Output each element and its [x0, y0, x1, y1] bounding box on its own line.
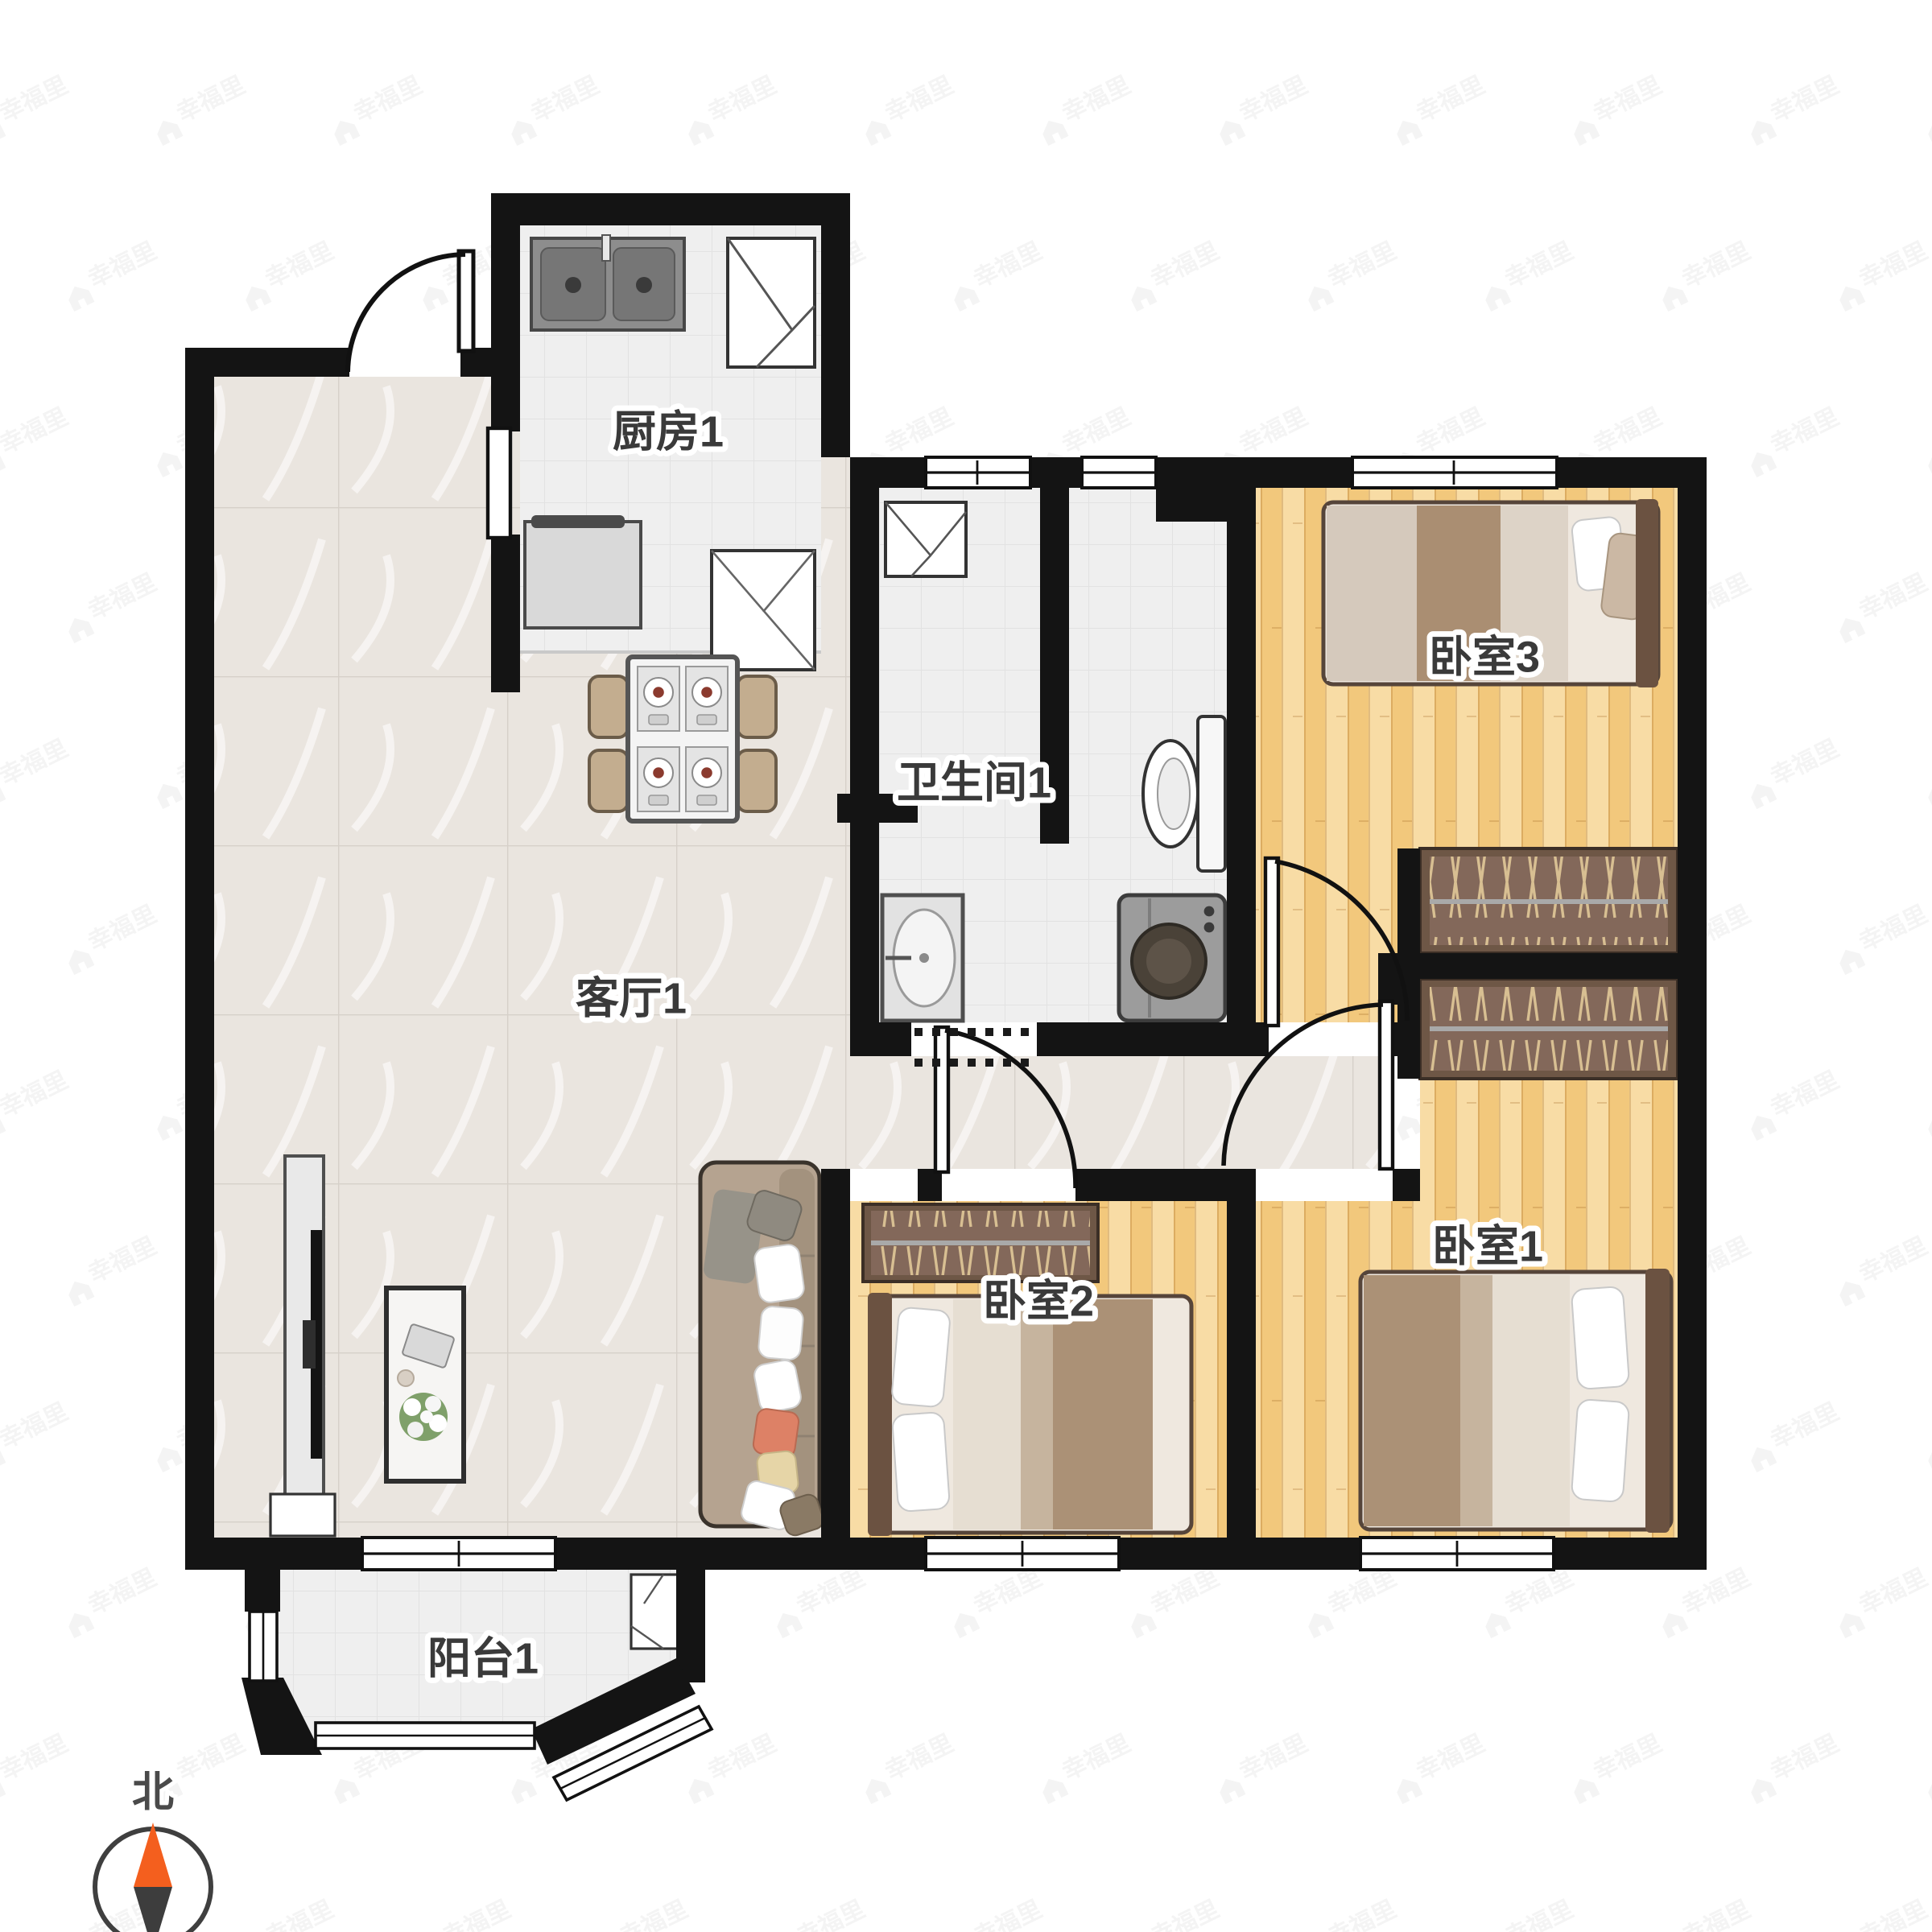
balcony-south-window — [316, 1723, 535, 1748]
watermark-house-icon — [64, 1608, 94, 1638]
watermark-text: 幸福里 — [1855, 237, 1931, 293]
watermark-house-icon — [861, 116, 891, 146]
watermark-house-icon — [1924, 1774, 1932, 1804]
watermark-text: 幸福里 — [1678, 1896, 1754, 1932]
tv-console — [285, 1156, 324, 1529]
watermark-text: 幸福里 — [1235, 72, 1311, 127]
watermark-text: 幸福里 — [84, 1564, 160, 1620]
watermark-text: 幸福里 — [172, 1730, 249, 1785]
kitchen-west-wall-upper — [491, 225, 520, 431]
watermark-text: 幸福里 — [1766, 72, 1843, 127]
watermark-text: 幸福里 — [1323, 237, 1400, 293]
watermark-text: 幸福里 — [1058, 403, 1134, 459]
watermark-text: 幸福里 — [0, 1398, 72, 1454]
watermark-house-icon — [1038, 1774, 1068, 1804]
kitchen-counter — [525, 515, 641, 628]
watermark-text: 幸福里 — [1855, 901, 1931, 956]
watermark-text: 幸福里 — [349, 72, 426, 127]
watermark-text: 幸福里 — [1412, 403, 1488, 459]
dining-table-set — [589, 657, 776, 821]
watermark-text: 幸福里 — [1855, 1896, 1931, 1932]
watermark-house-icon — [64, 613, 94, 643]
bathroom-south-wall-a — [850, 1022, 911, 1056]
watermark-text: 幸福里 — [1678, 1564, 1754, 1620]
watermark-house-icon — [1304, 282, 1334, 312]
watermark-text: 幸福里 — [0, 735, 72, 791]
watermark-house-icon — [684, 1774, 714, 1804]
watermark-text: 幸福里 — [1501, 1896, 1577, 1932]
watermark-text: 幸福里 — [1146, 1896, 1223, 1932]
watermark-text: 幸福里 — [84, 569, 160, 625]
watermark-house-icon — [1835, 1277, 1865, 1307]
room-label-living-room: 客厅1 — [576, 974, 687, 1022]
watermark-text: 幸福里 — [84, 1232, 160, 1288]
east-wall — [1678, 457, 1707, 1570]
watermark-house-icon — [1747, 779, 1777, 809]
watermark-house-icon — [330, 1774, 360, 1804]
watermark-text: 幸福里 — [1678, 237, 1754, 293]
watermark-house-icon — [1747, 1443, 1777, 1472]
watermark-text: 幸福里 — [1412, 1730, 1488, 1785]
watermark-house-icon — [1481, 1608, 1511, 1638]
wardrobe-bedroom1 — [1420, 979, 1678, 1079]
watermark-text: 幸福里 — [84, 237, 160, 293]
wardrobe3-west-wall — [1397, 848, 1420, 953]
watermark-house-icon — [1747, 116, 1777, 146]
watermark-text: 幸福里 — [1589, 403, 1666, 459]
watermark-house-icon — [1835, 282, 1865, 312]
watermark-house-icon — [1835, 945, 1865, 975]
watermark-text: 幸福里 — [969, 237, 1046, 293]
floor-plan-canvas: 幸福里幸福里幸福里幸福里幸福里幸福里幸福里幸福里幸福里幸福里幸福里幸福里幸福里幸… — [0, 0, 1932, 1932]
watermark-text: 幸福里 — [881, 403, 957, 459]
room-label-balcony: 阳台1 — [427, 1634, 539, 1682]
room-label-bedroom1: 卧室1 — [1432, 1222, 1543, 1270]
watermark-house-icon — [1127, 282, 1157, 312]
double-bed-bedroom2 — [868, 1293, 1191, 1536]
watermark-house-icon — [1658, 282, 1688, 312]
watermark-house-icon — [1924, 1443, 1932, 1472]
watermark-text: 幸福里 — [704, 72, 780, 127]
bedroom3-window — [1352, 457, 1557, 488]
wardrobe-bedroom2 — [863, 1204, 1098, 1282]
bedroom1-window — [1360, 1538, 1554, 1570]
bedroom2-west-wall — [821, 1169, 850, 1570]
watermark-house-icon — [507, 116, 537, 146]
room-label-bathroom: 卫生间1 — [897, 758, 1051, 807]
watermark-house-icon — [1570, 1774, 1600, 1804]
watermark-text: 幸福里 — [261, 237, 337, 293]
watermark-house-icon — [153, 779, 183, 809]
watermark-house-icon — [419, 282, 448, 312]
watermark-text: 幸福里 — [1501, 1564, 1577, 1620]
watermark-house-icon — [1570, 116, 1600, 146]
bathroom-south-wall-b — [1037, 1022, 1269, 1056]
flower-vase — [399, 1393, 448, 1441]
watermark-text: 幸福里 — [881, 1730, 957, 1785]
room-label-bedroom2: 卧室2 — [983, 1277, 1094, 1325]
balcony-east-wall — [676, 1570, 705, 1682]
watermark-text: 幸福里 — [1766, 735, 1843, 791]
watermark-house-icon — [1304, 1608, 1334, 1638]
watermark-house-icon — [64, 1277, 94, 1307]
watermark-house-icon — [1924, 779, 1932, 809]
coffee-table — [386, 1288, 464, 1481]
watermark-text: 幸福里 — [84, 901, 160, 956]
watermark-house-icon — [1924, 116, 1932, 146]
watermark-house-icon — [1038, 116, 1068, 146]
watermark-house-icon — [1216, 1774, 1245, 1804]
wardrobe-bedroom3 — [1420, 848, 1678, 953]
watermark-text: 幸福里 — [1058, 72, 1134, 127]
watermark-house-icon — [153, 116, 183, 146]
watermark-house-icon — [153, 1111, 183, 1141]
watermark-text: 幸福里 — [0, 1067, 72, 1122]
south-wall-a — [185, 1538, 362, 1570]
kitchen-sliding-door — [488, 428, 510, 538]
watermark-text: 幸福里 — [1235, 1730, 1311, 1785]
watermark-house-icon — [684, 116, 714, 146]
balcony-sliding-door — [362, 1538, 555, 1570]
washing-machine — [1119, 895, 1225, 1021]
watermark-text: 幸福里 — [704, 1730, 780, 1785]
balcony-west-window — [250, 1612, 277, 1681]
watermark-text: 幸福里 — [615, 1896, 691, 1932]
watermark-house-icon — [950, 282, 980, 312]
balcony-west-wall-top — [245, 1570, 280, 1612]
watermark-text: 幸福里 — [1146, 237, 1223, 293]
watermark-text: 幸福里 — [1855, 1232, 1931, 1288]
compass-north-label: 北 — [132, 1769, 174, 1816]
watermark-house-icon — [1393, 1774, 1422, 1804]
kitchen-north-wall — [491, 193, 850, 225]
watermark-text: 幸福里 — [1766, 403, 1843, 459]
watermark-house-icon — [64, 945, 94, 975]
watermark-text: 幸福里 — [438, 1896, 514, 1932]
corridor-floor — [850, 1056, 1378, 1169]
watermark-text: 幸福里 — [1766, 1398, 1843, 1454]
watermark-text: 幸福里 — [1058, 1730, 1134, 1785]
watermark-house-icon — [1835, 613, 1865, 643]
watermark-house-icon — [1924, 1111, 1932, 1141]
watermark-house-icon — [1747, 1111, 1777, 1141]
west-wall — [185, 348, 214, 1570]
watermark-house-icon — [1481, 282, 1511, 312]
watermark-text: 幸福里 — [1766, 1730, 1843, 1785]
watermark-text: 幸福里 — [969, 1896, 1046, 1932]
watermark-text: 幸福里 — [1323, 1564, 1400, 1620]
watermark-text: 幸福里 — [1589, 72, 1666, 127]
watermark-house-icon — [1658, 1608, 1688, 1638]
watermark-text: 幸福里 — [792, 1896, 869, 1932]
bathroom-window-2 — [1082, 457, 1156, 488]
watermark-text: 幸福里 — [0, 403, 72, 459]
watermark-house-icon — [153, 1443, 183, 1472]
wardrobe1-west-wall — [1397, 979, 1420, 1079]
watermark-text: 幸福里 — [261, 1896, 337, 1932]
kitchen-corner-cabinet — [728, 238, 815, 367]
double-bed-bedroom1 — [1360, 1269, 1671, 1533]
watermark-house-icon — [773, 1608, 803, 1638]
watermark-text: 幸福里 — [1501, 237, 1577, 293]
bedrooms-north-wall-b — [1075, 1169, 1227, 1201]
watermark-house-icon — [1835, 1608, 1865, 1638]
watermark-house-icon — [507, 1774, 537, 1804]
watermark-house-icon — [1393, 1111, 1422, 1141]
watermark-house-icon — [861, 1774, 891, 1804]
watermark-text: 幸福里 — [526, 72, 603, 127]
bathroom-west-wall — [850, 488, 879, 1056]
watermark-house-icon — [64, 282, 94, 312]
watermark-text: 幸福里 — [1766, 1067, 1843, 1122]
fridge — [712, 551, 815, 670]
compass: 北 — [95, 1769, 211, 1932]
watermark-text: 幸福里 — [881, 72, 957, 127]
watermark-house-icon — [242, 282, 271, 312]
wardrobe-mid-wall — [1378, 953, 1678, 979]
watermark-text: 幸福里 — [1235, 403, 1311, 459]
bathroom-east-wall — [1227, 457, 1256, 1022]
watermark-text: 幸福里 — [1412, 72, 1488, 127]
floor-plan-svg: 幸福里幸福里幸福里幸福里幸福里幸福里幸福里幸福里幸福里幸福里幸福里幸福里幸福里幸… — [0, 0, 1932, 1932]
room-label-kitchen: 厨房1 — [613, 407, 724, 456]
bedroom2-window — [926, 1538, 1119, 1570]
watermark-text: 幸福里 — [172, 72, 249, 127]
watermark-house-icon — [1127, 1608, 1157, 1638]
watermark-text: 幸福里 — [1855, 569, 1931, 625]
kitchen-west-wall-lower — [491, 535, 520, 692]
watermark-text: 幸福里 — [792, 1564, 869, 1620]
watermark-text: 幸福里 — [0, 1730, 72, 1785]
ac-unit-box-left — [270, 1494, 335, 1536]
sofa — [700, 1162, 826, 1538]
bathroom-sink — [882, 895, 963, 1021]
bathroom-window-1 — [926, 457, 1030, 488]
bedroom1-arm-floor — [1420, 1079, 1678, 1201]
kitchen-east-wall — [821, 225, 850, 457]
watermark-house-icon — [1924, 448, 1932, 477]
watermark-text: 幸福里 — [969, 1564, 1046, 1620]
watermark-house-icon — [330, 116, 360, 146]
watermark-text: 幸福里 — [1855, 1564, 1931, 1620]
watermark-house-icon — [1393, 116, 1422, 146]
watermark-text: 幸福里 — [1323, 1896, 1400, 1932]
bedrooms-north-wall-c — [1393, 1169, 1420, 1201]
watermark-text: 幸福里 — [1589, 1730, 1666, 1785]
bedroom-divider-wall — [1227, 1169, 1256, 1570]
bathroom-cabinet — [885, 502, 966, 576]
room-label-bedroom3: 卧室3 — [1429, 633, 1540, 681]
watermark-house-icon — [153, 448, 183, 477]
watermark-text: 幸福里 — [1146, 1564, 1223, 1620]
watermark-text: 幸福里 — [0, 72, 72, 127]
watermark-house-icon — [1747, 1774, 1777, 1804]
watermark-house-icon — [1747, 448, 1777, 477]
kitchen-sink — [531, 235, 684, 330]
watermark-house-icon — [1216, 116, 1245, 146]
watermark-house-icon — [950, 1608, 980, 1638]
